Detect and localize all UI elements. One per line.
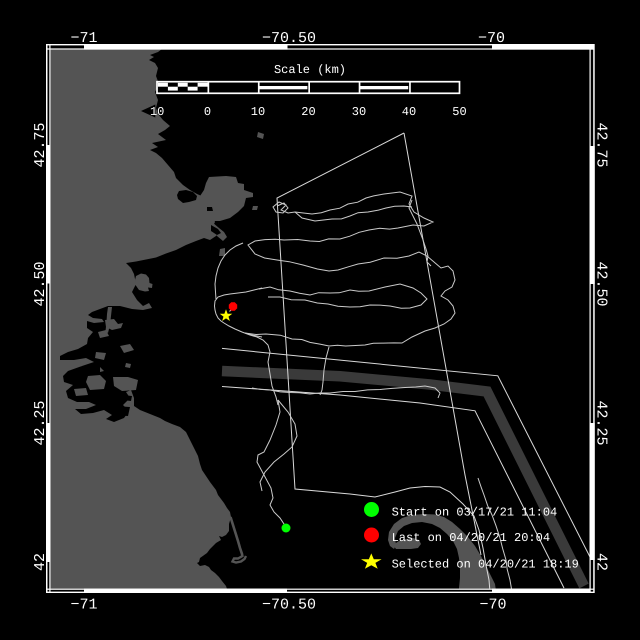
svg-text:42.50: 42.50 <box>32 261 49 306</box>
svg-text:42.50: 42.50 <box>593 261 610 306</box>
svg-text:Last on 04/20/21 20:04: Last on 04/20/21 20:04 <box>392 531 550 545</box>
svg-text:−70: −70 <box>478 30 505 47</box>
svg-text:−71: −71 <box>70 597 97 614</box>
svg-text:42: 42 <box>593 553 610 571</box>
svg-text:0: 0 <box>204 105 211 119</box>
svg-text:−70.50: −70.50 <box>262 30 316 47</box>
svg-text:42.75: 42.75 <box>593 122 610 167</box>
svg-text:−70: −70 <box>479 597 506 614</box>
svg-text:42.75: 42.75 <box>32 122 49 167</box>
svg-text:42.25: 42.25 <box>593 400 610 445</box>
svg-text:−70.50: −70.50 <box>262 597 316 614</box>
svg-text:42.25: 42.25 <box>32 400 49 445</box>
svg-text:50: 50 <box>452 105 466 119</box>
svg-text:Selected on 04/20/21 18:19: Selected on 04/20/21 18:19 <box>392 558 579 572</box>
svg-text:Start on 03/17/21 11:04: Start on 03/17/21 11:04 <box>392 506 558 520</box>
svg-text:42: 42 <box>32 553 49 571</box>
svg-text:10: 10 <box>251 105 265 119</box>
svg-text:10: 10 <box>150 105 164 119</box>
svg-text:20: 20 <box>301 105 315 119</box>
svg-text:40: 40 <box>402 105 416 119</box>
svg-text:Scale (km): Scale (km) <box>274 63 346 77</box>
svg-text:30: 30 <box>352 105 366 119</box>
svg-text:−71: −71 <box>70 30 97 47</box>
